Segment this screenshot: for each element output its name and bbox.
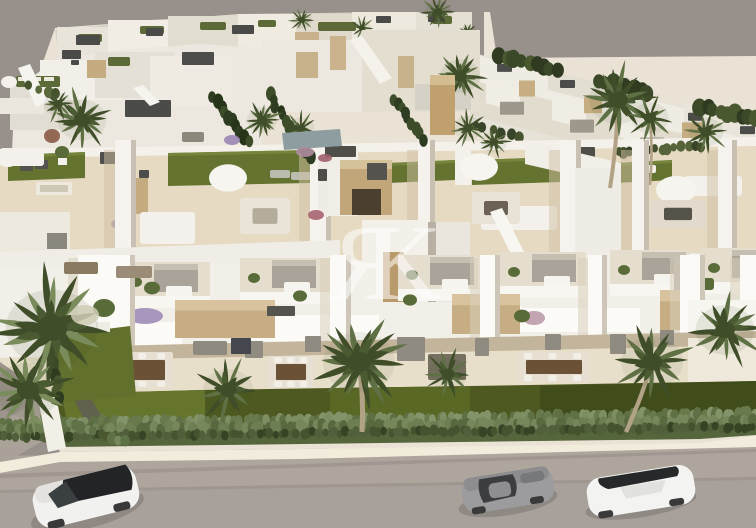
svg-text:K: K [364,204,442,323]
